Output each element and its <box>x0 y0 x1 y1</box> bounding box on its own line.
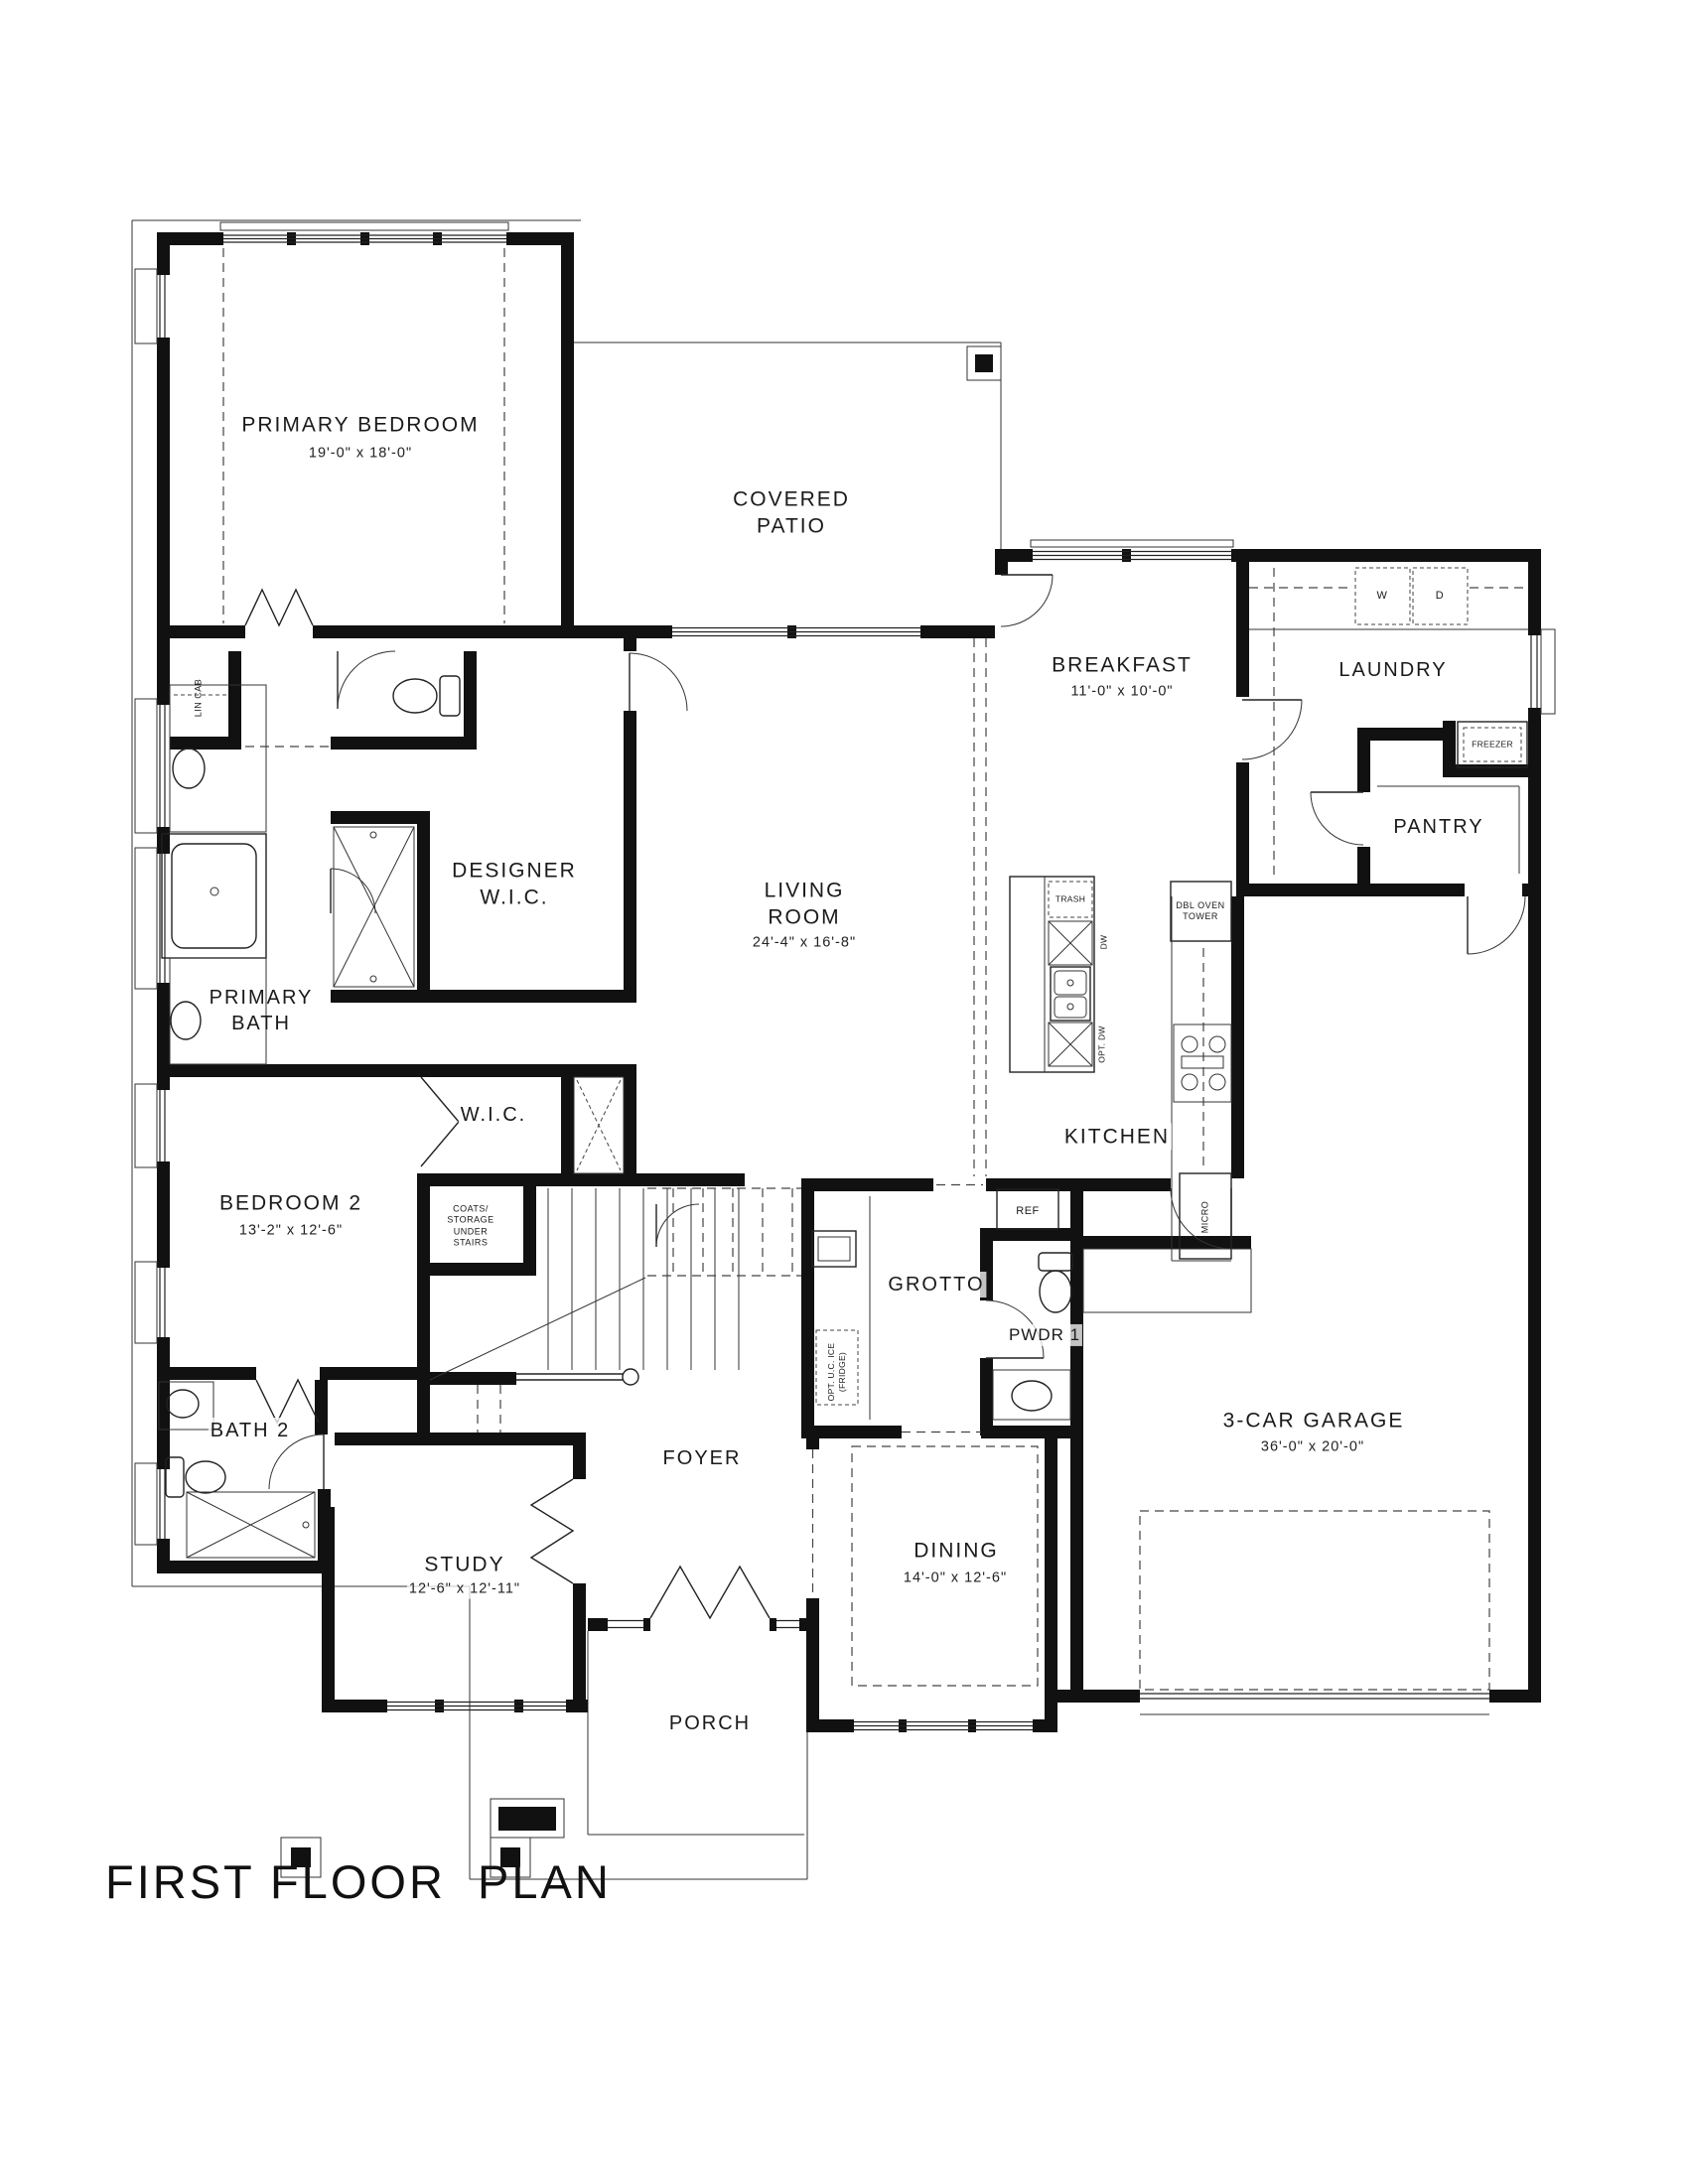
room-label-dining: DINING <box>912 1537 1001 1564</box>
room-label-breakfast: BREAKFAST <box>1050 651 1195 678</box>
room-dims-study: 12'-6" x 12'-11" <box>407 1580 522 1599</box>
fixture-label-lin-cab: LIN CAB <box>193 677 204 720</box>
fixture-label-opt-dw: OPT. DW <box>1096 1024 1107 1065</box>
eave-outline <box>132 220 807 1879</box>
fixture-label-dw: DW <box>1098 933 1109 952</box>
room-label-laundry: LAUNDRY <box>1336 657 1449 683</box>
fixtures <box>159 568 1528 1877</box>
room-dims-primary-bedroom: 19'-0" x 18'-0" <box>307 445 414 464</box>
room-label-garage: 3-CAR GARAGE <box>1221 1407 1407 1433</box>
fixture-label-micro: MICRO <box>1199 1199 1210 1236</box>
room-label-pantry: PANTRY <box>1391 814 1485 840</box>
room-label-grotto: GROTTO <box>886 1272 986 1297</box>
room-label-primary-bedroom: PRIMARY BEDROOM <box>239 411 481 438</box>
doors <box>245 575 1525 1618</box>
room-label-living-room: LIVING ROOM <box>738 878 871 932</box>
room-label-wic: W.I.C. <box>459 1102 528 1128</box>
fixture-label-washer: W <box>1375 590 1390 604</box>
room-label-covered-patio: COVERED PATIO <box>700 486 883 541</box>
garage-door <box>1140 1511 1489 1714</box>
room-label-bath-2: BATH 2 <box>209 1418 293 1443</box>
room-label-study: STUDY <box>422 1551 506 1577</box>
room-dims-dining: 14'-0" x 12'-6" <box>902 1570 1009 1588</box>
fixture-label-dbl-oven-tower: DBL OVEN TOWER <box>1172 900 1229 923</box>
room-label-designer-wic: DESIGNER W.I.C. <box>431 858 599 912</box>
room-label-kitchen: KITCHEN <box>1062 1123 1172 1150</box>
room-dims-living-room: 24'-4" x 16'-8" <box>751 934 858 953</box>
room-label-bedroom-2: BEDROOM 2 <box>217 1189 364 1216</box>
room-label-pwdr-1: PWDR 1 <box>1007 1324 1082 1346</box>
room-dims-breakfast: 11'-0" x 10'-0" <box>1068 683 1175 702</box>
room-label-porch: PORCH <box>667 1710 753 1736</box>
room-label-foyer: FOYER <box>661 1445 744 1471</box>
fixture-label-ref: REF <box>1014 1205 1042 1219</box>
fixture-label-opt-ice: OPT. U.C. ICE (FRIDGE) <box>826 1327 848 1417</box>
fixture-label-trash: TRASH <box>1054 893 1087 904</box>
fixture-label-dryer: D <box>1434 590 1446 604</box>
fixture-label-coats-storage: COATS/ STORAGE UNDER STAIRS <box>436 1204 505 1249</box>
fixture-label-freezer: FREEZER <box>1470 739 1515 750</box>
drawing-title: FIRST FLOOR PLAN <box>105 1854 612 1909</box>
room-dims-bedroom-2: 13'-2" x 12'-6" <box>237 1222 345 1241</box>
floor-plan-page: PRIMARY BEDROOM 19'-0" x 18'-0" COVERED … <box>0 0 1688 2184</box>
room-dims-garage: 36'-0" x 20'-0" <box>1259 1438 1366 1457</box>
room-label-primary-bath: PRIMARY BATH <box>195 985 328 1036</box>
